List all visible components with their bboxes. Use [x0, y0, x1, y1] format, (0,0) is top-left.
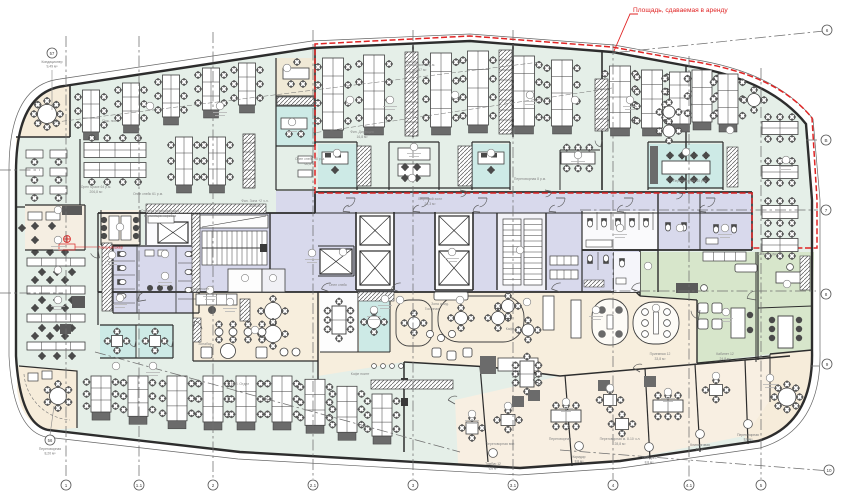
- svg-text:Переговорная: Переговорная: [39, 447, 61, 451]
- svg-text:1.1: 1.1: [136, 483, 143, 488]
- svg-text:8,8 м²: 8,8 м²: [696, 448, 706, 452]
- svg-text:Кофе поинт: Кофе поинт: [351, 372, 370, 376]
- svg-text:Переговорная: Переговорная: [549, 437, 571, 441]
- svg-text:Моб. Отдел: Моб. Отдел: [231, 382, 249, 386]
- svg-text:2: 2: [212, 483, 215, 488]
- svg-text:Гостиная: Гостиная: [425, 307, 439, 311]
- svg-text:60,8 м²: 60,8 м²: [304, 162, 316, 166]
- svg-text:Клининговая: Клининговая: [690, 443, 710, 447]
- svg-text:Опен спейс 61 р.м.: Опен спейс 61 р.м.: [133, 192, 163, 196]
- svg-text:Опен спейс: Опен спейс: [329, 283, 347, 287]
- svg-text:9,49 м²: 9,49 м²: [46, 65, 58, 69]
- svg-text:56: 56: [48, 438, 53, 443]
- svg-text:Переговорная: Переговорная: [737, 433, 759, 437]
- svg-text:Кабинет рук. 12: Кабинет рук. 12: [758, 252, 783, 256]
- svg-text:Отметка пересыхающих: Отметка пересыхающих: [141, 209, 180, 213]
- svg-text:Зона ожид.: Зона ожид.: [431, 302, 449, 306]
- svg-text:3: 3: [412, 483, 415, 488]
- svg-text:Переговорная вип: Переговорная вип: [486, 442, 515, 446]
- svg-text:5: 5: [760, 483, 763, 488]
- svg-text:Лифтовой холл: Лифтовой холл: [418, 197, 442, 201]
- svg-text:Open Space 64 р.м.: Open Space 64 р.м.: [81, 185, 112, 189]
- svg-text:16,8 м²: 16,8 м²: [356, 135, 368, 139]
- svg-text:8,8 м²: 8,8 м²: [645, 461, 655, 465]
- svg-text:Кафе: Кафе: [506, 327, 515, 331]
- svg-text:Кондиционер: Кондиционер: [42, 60, 63, 64]
- svg-text:4.1: 4.1: [686, 483, 693, 488]
- svg-text:8,20 м²: 8,20 м²: [44, 452, 56, 456]
- svg-text:Площадь, сдаваемая в аренду: Площадь, сдаваемая в аренду: [633, 7, 728, 14]
- svg-text:Фан. Зона +2 ч.л.: Фан. Зона +2 ч.л.: [241, 199, 268, 203]
- svg-text:57: 57: [50, 51, 55, 56]
- svg-text:Кабинет 12: Кабинет 12: [716, 352, 734, 356]
- svg-text:Коридор: Коридор: [572, 455, 585, 459]
- svg-text:10: 10: [826, 468, 832, 473]
- svg-text:Переговорная м. 8-10 ч.л.: Переговорная м. 8-10 ч.л.: [600, 437, 641, 441]
- svg-text:24,8 м²: 24,8 м²: [719, 357, 731, 361]
- svg-text:28,8 м²: 28,8 м²: [614, 442, 626, 446]
- svg-text:33,8 м²: 33,8 м²: [654, 357, 666, 361]
- svg-text:8,8 м²: 8,8 м²: [744, 438, 754, 442]
- svg-text:1: 1: [65, 483, 68, 488]
- svg-text:Фин. Дирекция: Фин. Дирекция: [350, 130, 374, 134]
- svg-text:Приемная 12: Приемная 12: [650, 352, 671, 356]
- svg-text:24,3 м²: 24,3 м²: [424, 202, 436, 206]
- svg-text:3.1: 3.1: [510, 483, 517, 488]
- svg-text:вентиляции коробов: вентиляции коробов: [144, 214, 176, 218]
- svg-text:Пожарный шкаф: Пожарный шкаф: [98, 246, 123, 250]
- svg-text:4: 4: [612, 483, 615, 488]
- svg-text:82,57 м²: 82,57 м²: [414, 68, 428, 72]
- svg-text:7: 7: [825, 208, 828, 213]
- svg-text:Тамбур13: Тамбур13: [642, 456, 657, 460]
- svg-text:206,8 м²: 206,8 м²: [90, 190, 104, 194]
- svg-text:B: B: [824, 138, 827, 143]
- svg-text:Кофе поинт: Кофе поинт: [191, 287, 210, 291]
- svg-text:8,8 м²: 8,8 м²: [489, 467, 499, 471]
- svg-text:6: 6: [826, 28, 829, 33]
- svg-text:8: 8: [825, 292, 828, 297]
- svg-text:Тамбур 12: Тамбур 12: [485, 462, 501, 466]
- svg-text:Зонабар: Зонабар: [198, 342, 211, 346]
- svg-text:Опен спейс 18 р.м.: Опен спейс 18 р.м.: [295, 157, 325, 161]
- svg-text:9: 9: [826, 362, 829, 367]
- svg-text:8,8 м²: 8,8 м²: [575, 460, 585, 464]
- svg-text:Пож. пост: Пож. пост: [102, 119, 118, 123]
- svg-text:Переговорная 10 р.м.: Переговорная 10 р.м.: [673, 179, 707, 183]
- svg-text:3008 м²: 3008 м²: [249, 204, 262, 208]
- svg-text:2.1: 2.1: [310, 483, 317, 488]
- svg-text:Open Space 75 р.м.: Open Space 75 р.м.: [405, 63, 436, 67]
- svg-text:Переговорная 8 р.м.: Переговорная 8 р.м.: [514, 177, 546, 181]
